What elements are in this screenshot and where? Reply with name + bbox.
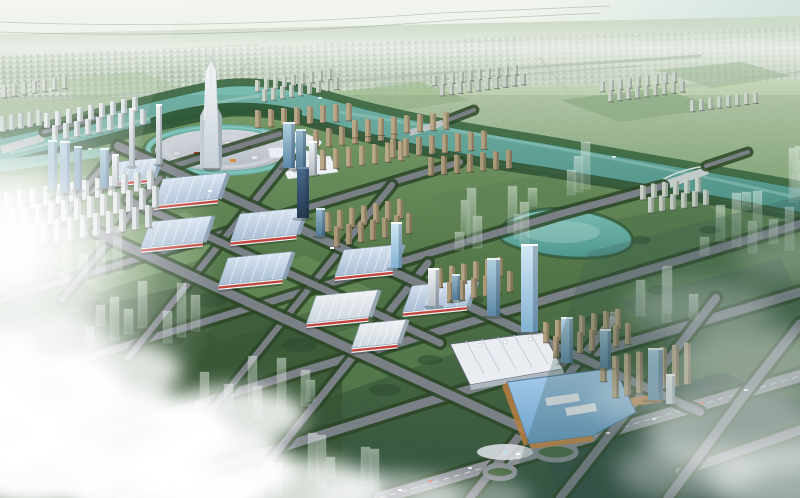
rendering-canvas xyxy=(0,0,800,498)
aerial-city-rendering xyxy=(0,0,800,498)
